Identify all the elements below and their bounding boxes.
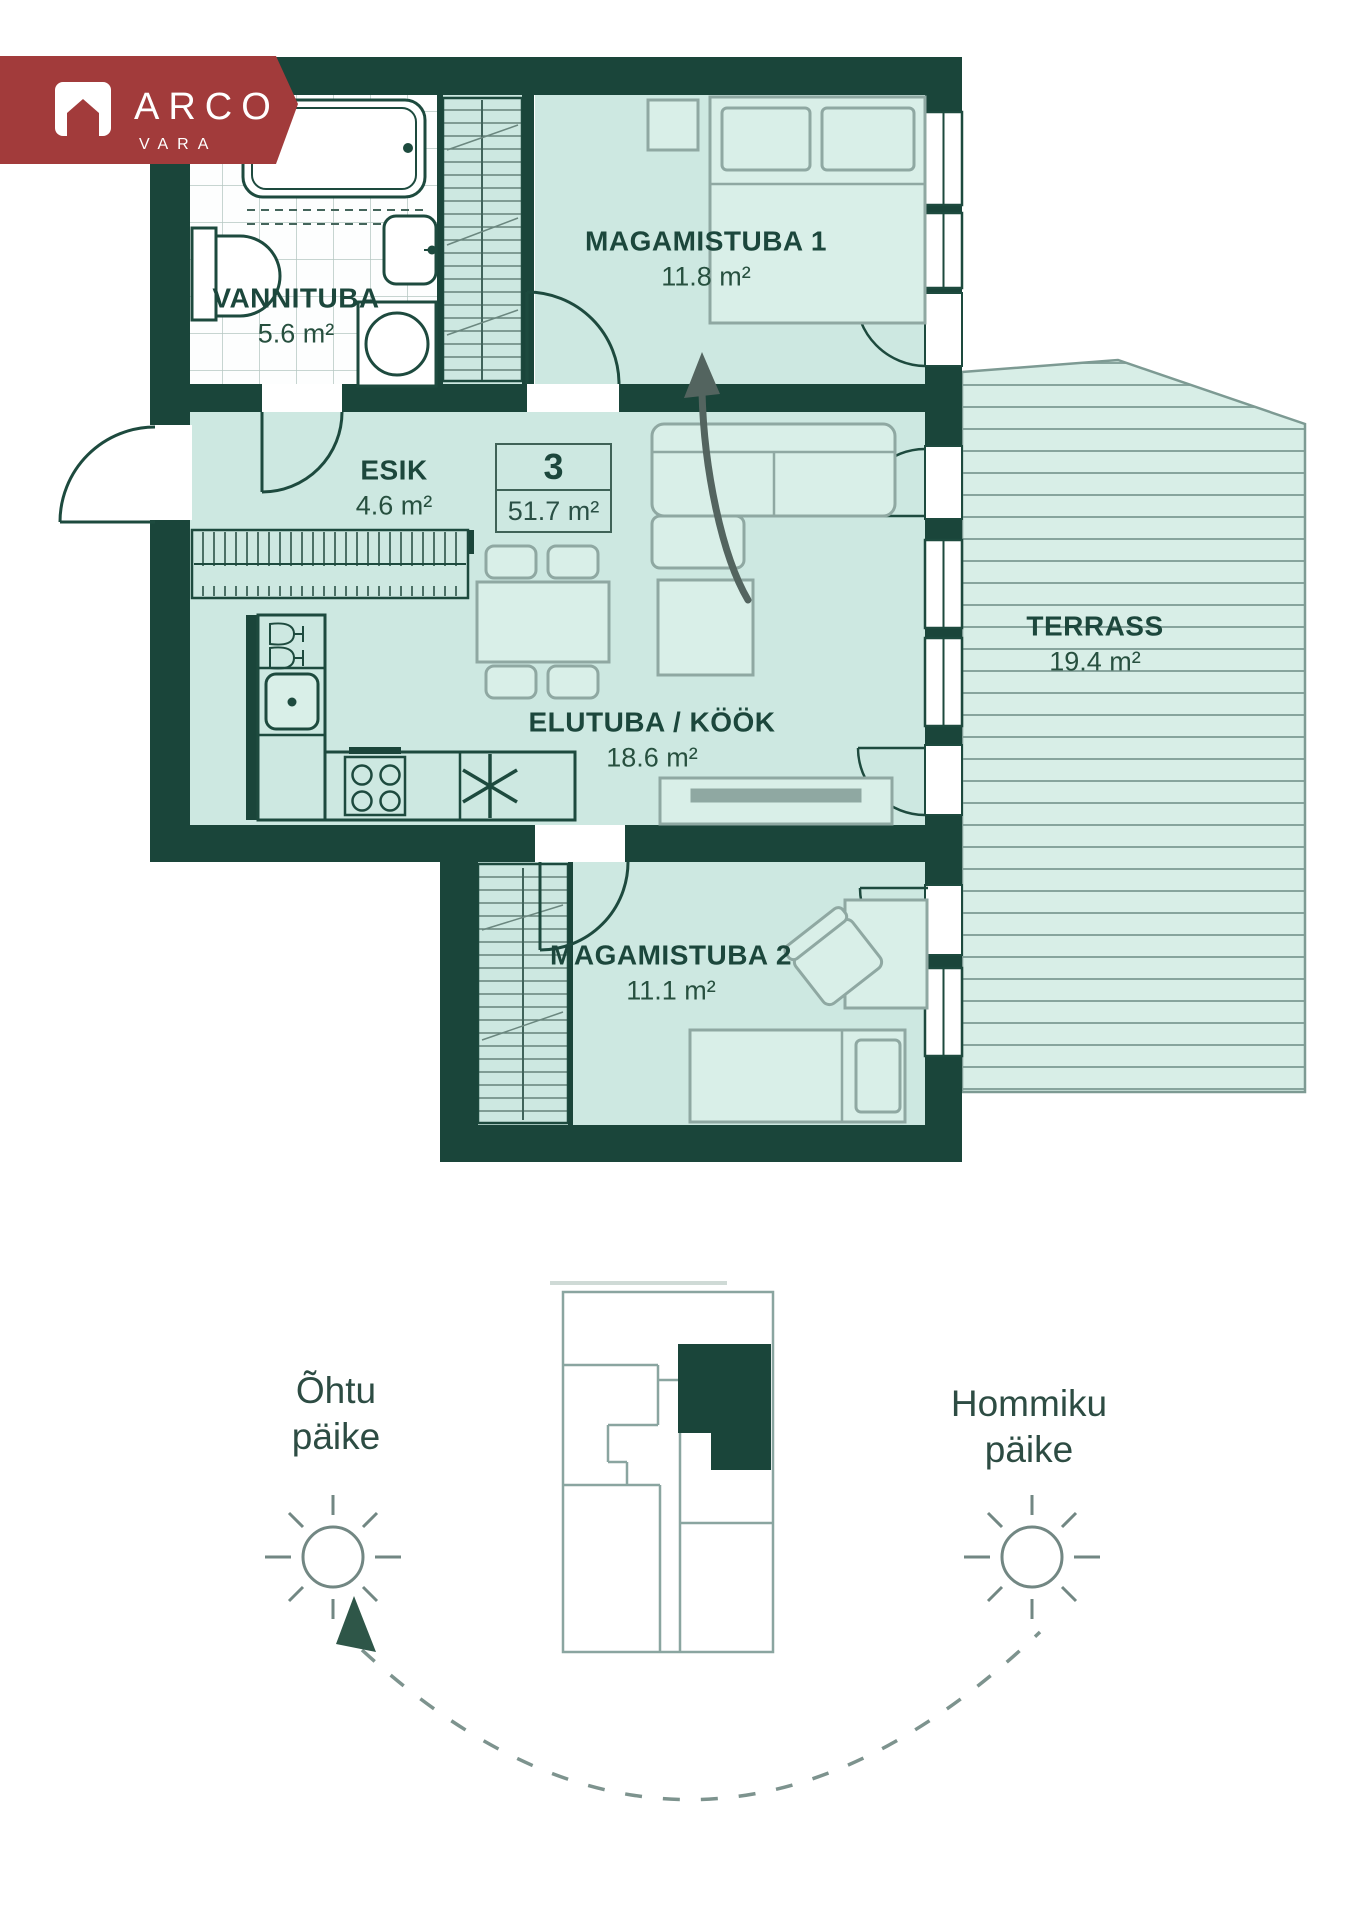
room-label-vannituba: VANNITUBA 5.6 m² bbox=[212, 283, 379, 350]
wardrobe-hallway-top bbox=[443, 98, 522, 381]
room-label-terrass: TERRASS 19.4 m² bbox=[1026, 611, 1163, 678]
terrace-deck bbox=[962, 360, 1305, 1092]
unit-area: 51.7 m² bbox=[497, 491, 610, 531]
stove-icon bbox=[345, 747, 405, 815]
tv-bench-icon bbox=[660, 778, 892, 824]
single-bed-icon bbox=[690, 1030, 905, 1122]
nightstand-icon bbox=[648, 100, 698, 150]
brand-banner: ARCO VARA bbox=[0, 56, 298, 164]
sun-icon-east bbox=[964, 1495, 1100, 1619]
coat-rack-icon bbox=[192, 530, 468, 598]
site-plan bbox=[550, 1283, 773, 1652]
sun-icon-west bbox=[265, 1495, 401, 1619]
room-label-magamistuba-1: MAGAMISTUBA 1 11.8 m² bbox=[585, 226, 827, 293]
west-sun-label: Õhtu päike bbox=[292, 1368, 380, 1460]
brand-name: ARCO bbox=[134, 86, 280, 129]
arc-arrowhead-icon bbox=[336, 1596, 376, 1652]
room-label-esik: ESIK 4.6 m² bbox=[356, 455, 433, 522]
house-icon bbox=[55, 82, 111, 136]
brand-subname: VARA bbox=[139, 136, 217, 154]
bathroom-sink-icon bbox=[384, 216, 437, 284]
unit-number: 3 bbox=[497, 445, 610, 491]
room-label-elutuba-kook: ELUTUBA / KÖÖK 18.6 m² bbox=[528, 707, 775, 774]
floor-plan-page: ARCO VARA VANNITUBA 5.6 m² MAGAMISTUBA 1… bbox=[0, 0, 1358, 1920]
kitchen-sink-icon bbox=[266, 674, 318, 729]
coffee-table-icon bbox=[658, 580, 753, 675]
east-sun-label: Hommiku päike bbox=[951, 1381, 1107, 1473]
room-label-magamistuba-2: MAGAMISTUBA 2 11.1 m² bbox=[550, 940, 792, 1007]
unit-number-box: 3 51.7 m² bbox=[495, 443, 612, 533]
